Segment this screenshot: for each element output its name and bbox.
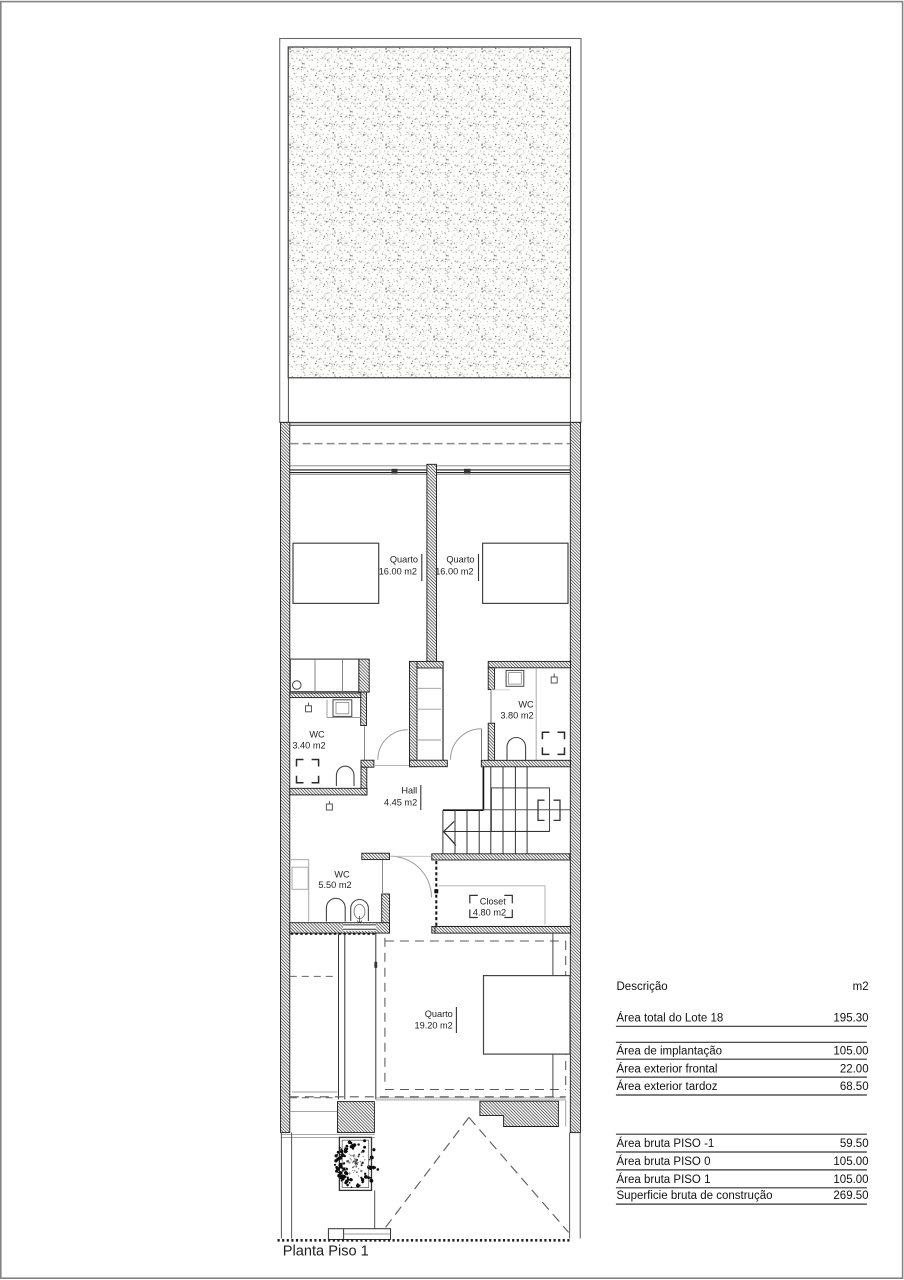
svg-text:Área exterior frontal: Área exterior frontal [617,1062,718,1075]
svg-text:22.00: 22.00 [840,1063,869,1075]
svg-text:Closet: Closet [480,896,506,906]
svg-text:19.20 m2: 19.20 m2 [414,1021,452,1031]
svg-text:3.80 m2: 3.80 m2 [500,711,533,721]
svg-text:195.30: 195.30 [833,1013,868,1025]
svg-text:Planta Piso 1: Planta Piso 1 [283,1244,369,1260]
svg-text:16.00 m2: 16.00 m2 [379,567,417,577]
svg-text:Área total do Lote 18: Área total do Lote 18 [617,1012,724,1025]
svg-text:269.50: 269.50 [833,1190,868,1202]
svg-text:Área bruta PISO 0: Área bruta PISO 0 [617,1155,711,1168]
svg-text:105.00: 105.00 [833,1156,868,1168]
svg-text:Hall: Hall [401,786,417,796]
svg-text:4.80 m2: 4.80 m2 [473,907,506,917]
svg-text:3.40 m2: 3.40 m2 [292,741,325,751]
svg-text:Superficie bruta de construção: Superficie bruta de construção [617,1190,773,1202]
svg-text:5.50 m2: 5.50 m2 [318,880,351,890]
svg-text:16.00 m2: 16.00 m2 [435,567,473,577]
svg-text:m2: m2 [853,981,869,993]
svg-text:68.50: 68.50 [840,1081,869,1093]
svg-text:Quarto: Quarto [446,555,474,565]
svg-text:4.45 m2: 4.45 m2 [384,798,417,808]
svg-text:Área de implantação: Área de implantação [617,1045,722,1058]
svg-text:Quarto: Quarto [390,555,418,565]
svg-text:105.00: 105.00 [833,1174,868,1186]
svg-text:WC: WC [309,730,325,740]
svg-text:Área exterior tardoz: Área exterior tardoz [617,1080,718,1093]
svg-text:WC: WC [334,869,350,879]
svg-text:WC: WC [518,700,534,710]
svg-text:Área bruta PISO 1: Área bruta PISO 1 [617,1173,711,1186]
svg-text:59.50: 59.50 [840,1138,869,1150]
svg-text:Quarto: Quarto [425,1009,453,1019]
svg-text:Área bruta PISO -1: Área bruta PISO -1 [617,1137,715,1150]
svg-text:105.00: 105.00 [833,1046,868,1058]
svg-text:Descrição: Descrição [617,981,668,993]
